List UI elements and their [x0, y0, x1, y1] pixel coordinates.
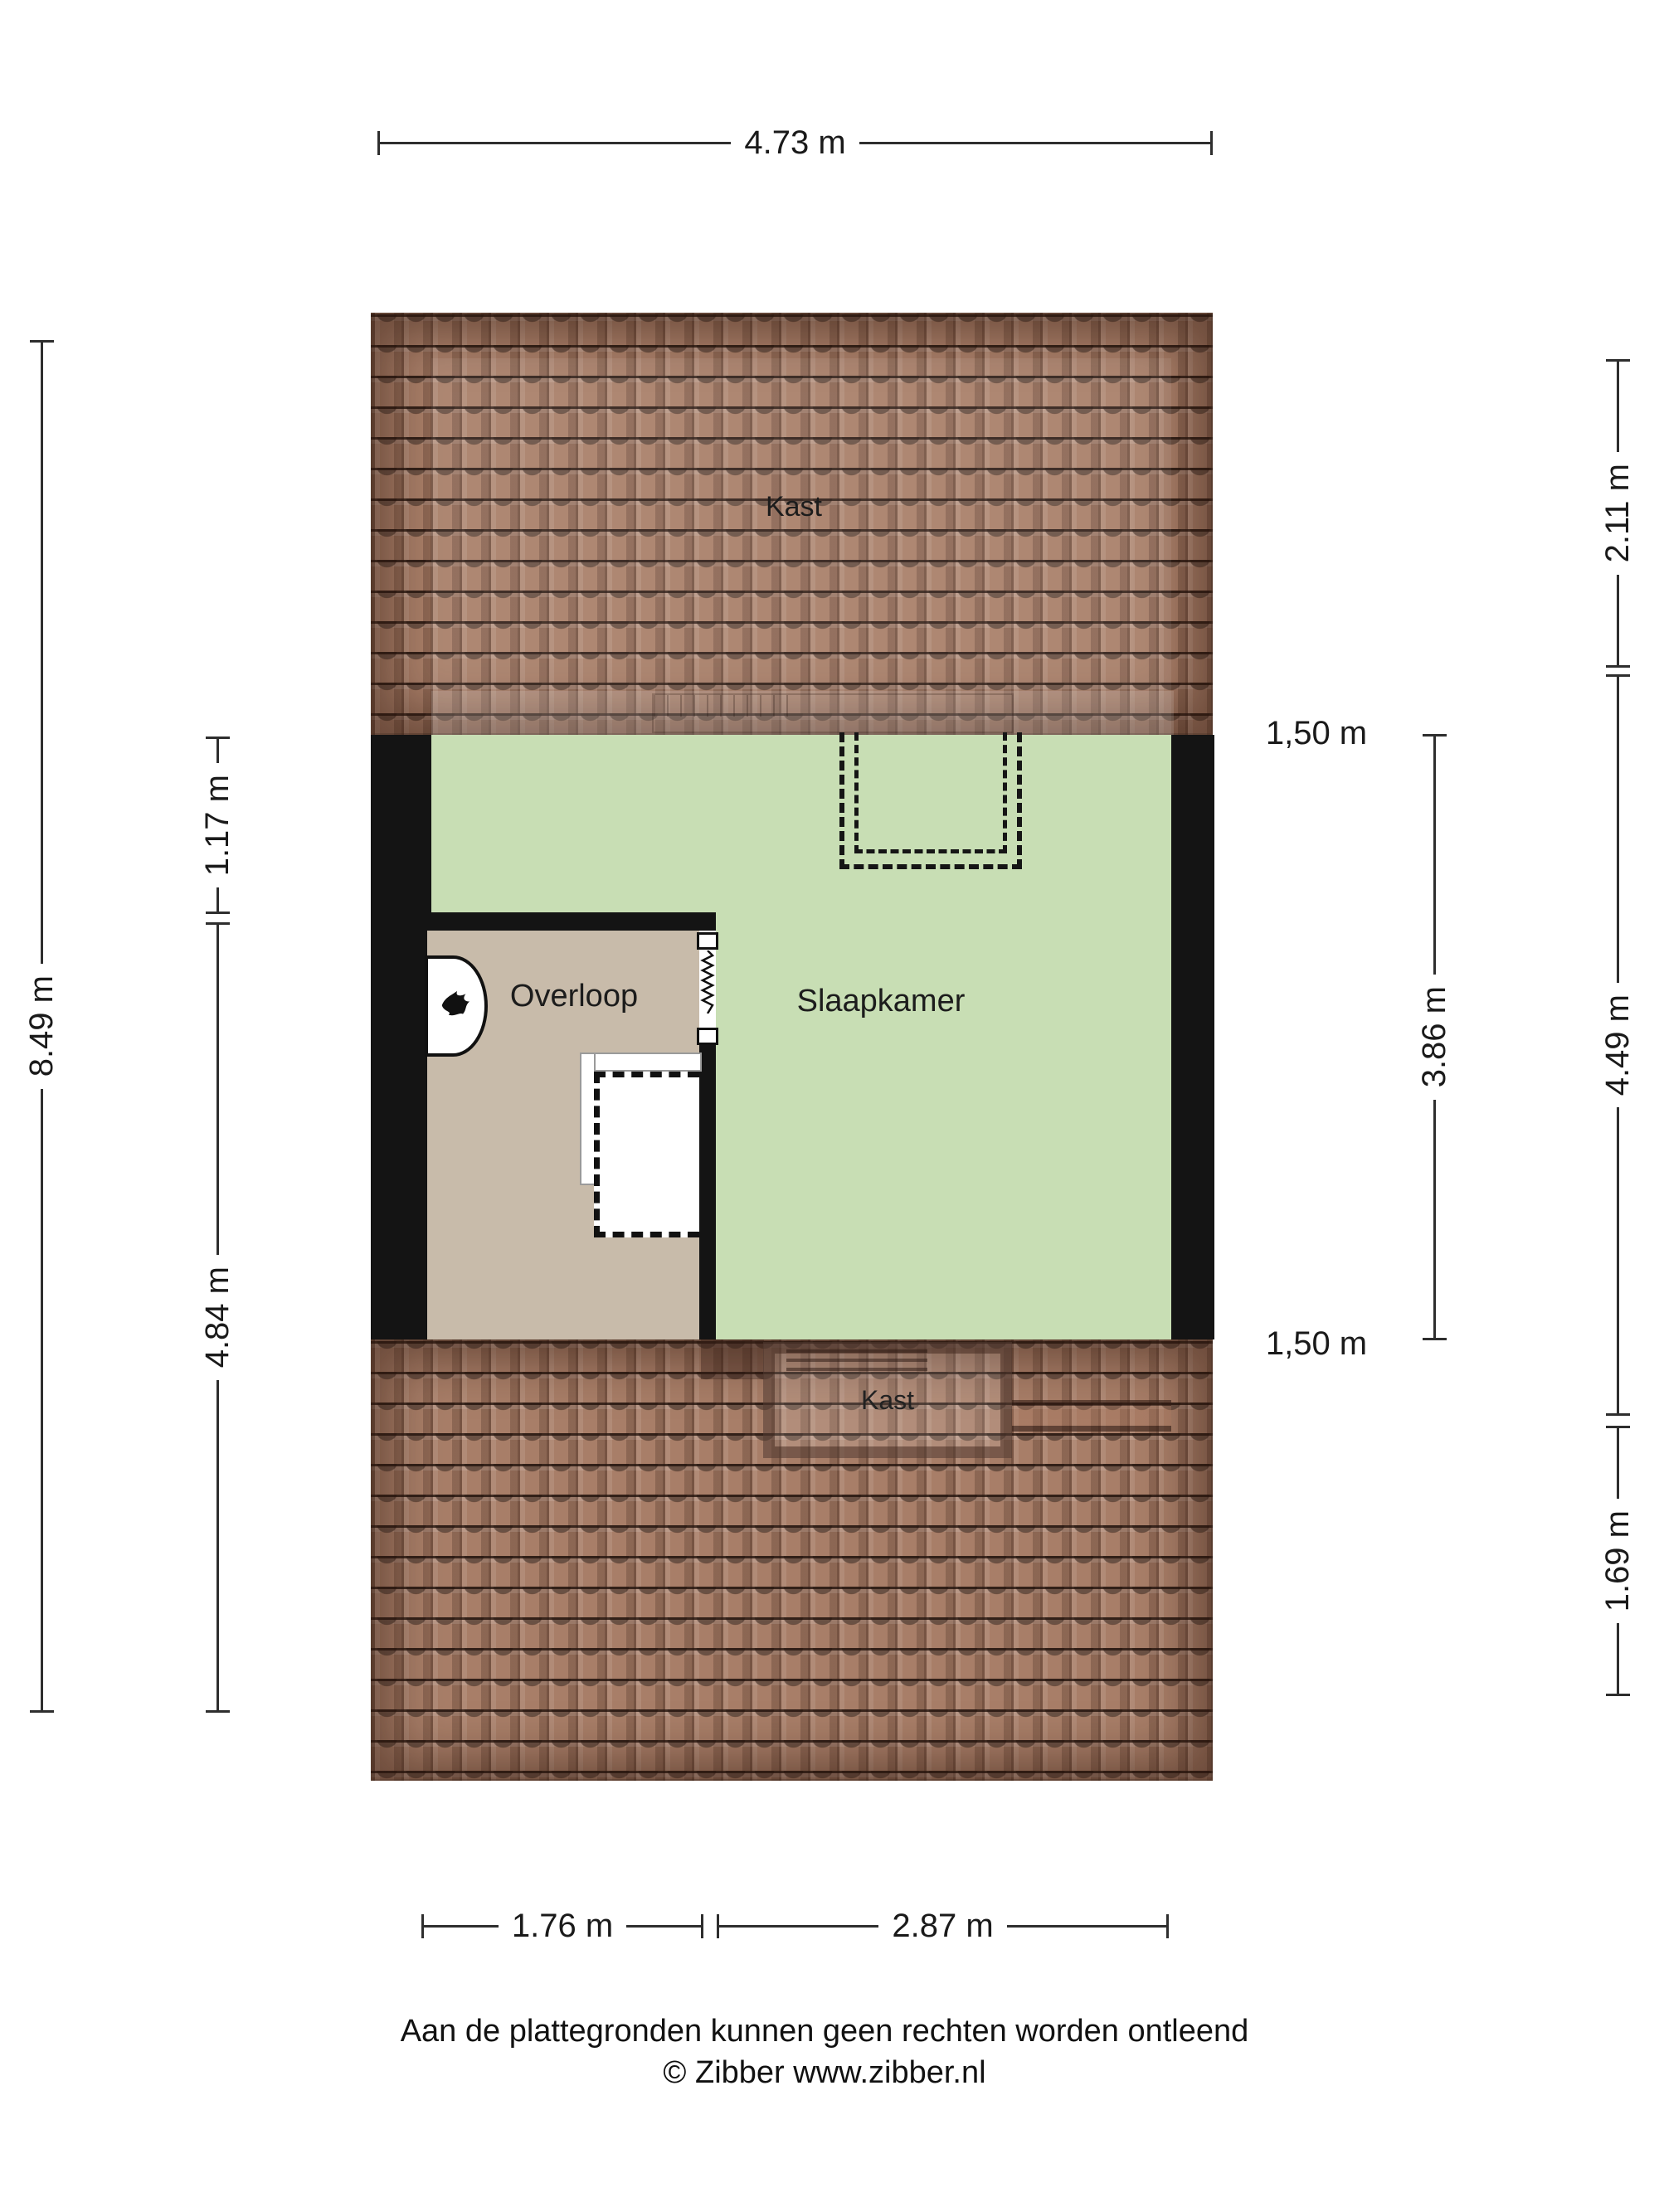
dimension-line — [1617, 575, 1619, 668]
dimension-left-upper: 1.17 m — [196, 737, 239, 914]
stair-railing-top — [580, 1053, 702, 1072]
dimension-top-width: 4.73 m — [377, 121, 1213, 164]
dimension-line — [1433, 1100, 1436, 1340]
dimension-line — [1617, 1623, 1619, 1696]
dimension-bottom-right: 2.87 m — [717, 1904, 1169, 1947]
dimension-label: 2.87 m — [878, 1908, 1006, 1945]
zigzag-opening-icon — [699, 950, 716, 1014]
dimension-label: 1.69 m — [1599, 1499, 1637, 1623]
room-label-kast-top: Kast — [727, 491, 860, 523]
dimension-line — [421, 1925, 499, 1928]
dormer-dashed-outline — [839, 732, 1022, 869]
dimension-right-upper: 2.11 m — [1596, 359, 1639, 668]
wall-overloop-top — [427, 912, 701, 931]
dimension-label: 4.84 m — [199, 1255, 236, 1379]
dimension-line — [216, 887, 219, 914]
dimension-label: 1.17 m — [199, 763, 236, 887]
floorplan-canvas: Kast Kast Overloop Slaapkamer 4.73 m 8.4… — [0, 0, 1659, 2212]
dimension-line — [1617, 1107, 1619, 1416]
dimension-line — [1433, 734, 1436, 975]
dimension-bottom-left: 1.76 m — [421, 1904, 703, 1947]
dimension-line — [859, 142, 1213, 144]
dimension-left-total: 8.49 m — [20, 340, 63, 1713]
dimension-right-middle: 4.49 m — [1596, 674, 1639, 1416]
footer-disclaimer: Aan de plattegronden kunnen geen rechten… — [0, 2010, 1649, 2052]
dimension-left-lower: 4.84 m — [196, 922, 239, 1713]
dimension-line — [1617, 674, 1619, 983]
dimension-right-lower: 1.69 m — [1596, 1426, 1639, 1696]
dimension-line — [216, 737, 219, 763]
dimension-right-inner: 3.86 m — [1413, 734, 1456, 1340]
stair-void-dashed — [594, 1072, 699, 1237]
roof-shadow-patch — [701, 1339, 764, 1379]
dimension-line — [626, 1925, 703, 1928]
wall-left — [371, 735, 431, 1339]
dimension-label: 1.76 m — [499, 1908, 626, 1945]
footer-credit: © Zibber www.zibber.nl — [0, 2052, 1649, 2093]
height-line-label-bottom: 1,50 m — [1246, 1325, 1387, 1363]
dimension-line — [216, 922, 219, 1255]
dimension-label: 2.11 m — [1599, 452, 1637, 574]
dimension-label: 4.49 m — [1599, 983, 1637, 1107]
dimension-line — [41, 1089, 43, 1713]
dimension-line — [1007, 1925, 1169, 1928]
stair-treads-pattern — [786, 1349, 927, 1376]
dimension-line — [1617, 1426, 1619, 1499]
roof-top-inner-highlight — [431, 358, 1171, 735]
opening-endpoint-bottom — [697, 1028, 718, 1045]
dimension-line — [41, 340, 43, 964]
dormer-dashed-outline-inner — [854, 732, 1007, 853]
dimension-line — [377, 142, 731, 144]
dimension-line — [1617, 359, 1619, 452]
dimension-line — [216, 1380, 219, 1713]
wall-right — [1171, 735, 1214, 1339]
room-label-overloop: Overloop — [491, 979, 657, 1014]
room-label-slaapkamer: Slaapkamer — [757, 984, 1005, 1019]
opening-endpoint-top — [697, 932, 718, 950]
dimension-line — [717, 1925, 878, 1928]
dimension-label: 4.73 m — [731, 124, 859, 162]
footer: Aan de plattegronden kunnen geen rechten… — [0, 2010, 1649, 2093]
dimension-label: 3.86 m — [1416, 975, 1453, 1099]
flame-icon — [437, 985, 475, 1028]
closet-wall-extension — [1012, 1400, 1171, 1432]
room-label-kast-bottom: Kast — [861, 1385, 914, 1416]
height-line-label-top: 1,50 m — [1246, 715, 1387, 752]
dimension-label: 8.49 m — [23, 964, 61, 1088]
knee-wall-stud-lines — [654, 695, 788, 717]
